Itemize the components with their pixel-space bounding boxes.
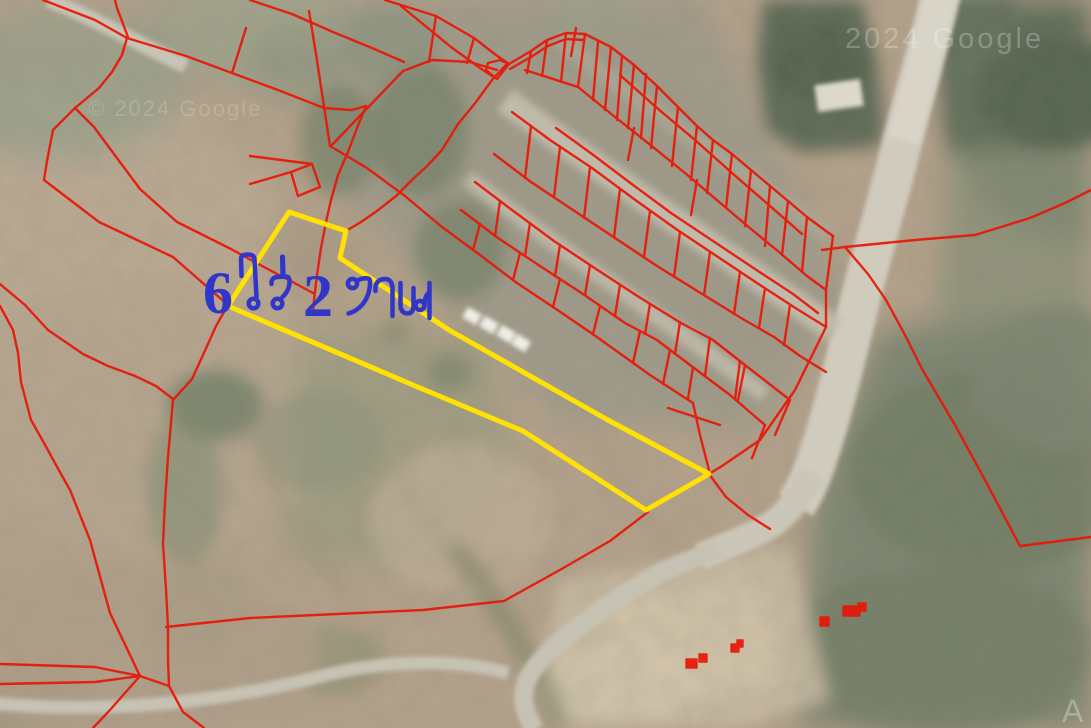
svg-text:2: 2 bbox=[303, 263, 333, 329]
svg-text:6: 6 bbox=[203, 260, 233, 326]
svg-text:2024 Google: 2024 Google bbox=[845, 23, 1044, 55]
svg-text:© 2024 Google: © 2024 Google bbox=[88, 96, 262, 121]
svg-text:A: A bbox=[1062, 693, 1084, 728]
